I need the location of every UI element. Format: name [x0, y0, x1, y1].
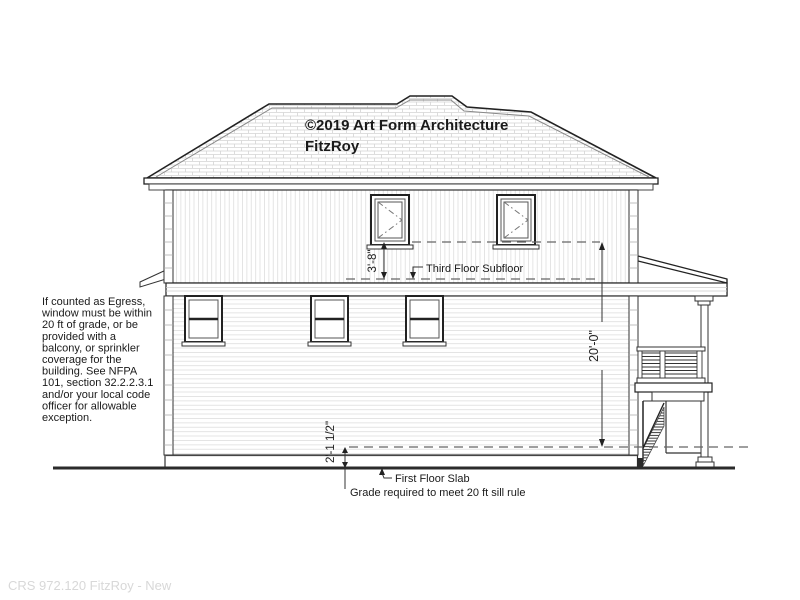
corner-board-upper-right: [629, 190, 638, 283]
egress-note-line: officer for allowable: [42, 400, 137, 412]
balcony-floor: [635, 383, 712, 401]
eave-fascia: [144, 178, 658, 190]
dim-text-sill-to-subfloor: 3'-8": [367, 250, 379, 273]
stair-rail-slats: [643, 407, 664, 466]
balcony-railing: [637, 347, 705, 383]
egress-note-line: window must be within: [41, 308, 152, 320]
window-sill: [367, 245, 413, 249]
third-floor-subfloor-text: Third Floor Subfloor: [426, 263, 524, 275]
elevation-drawing-sheet: 3'-8" 20'-0" 2'-1 1/2" Third Floor Subfl…: [0, 0, 800, 600]
second-floor-window-2: [308, 296, 351, 346]
dim-text-sill-to-grade: 20'-0": [587, 330, 601, 362]
egress-note-line: exception.: [42, 412, 92, 424]
grade-note-text: Grade required to meet 20 ft sill rule: [350, 487, 525, 499]
porch-stairs: [637, 401, 701, 468]
label-grade-note: Grade required to meet 20 ft sill rule: [350, 487, 525, 499]
left-band-return-roof: [140, 270, 166, 287]
foundation: [165, 455, 638, 468]
corner-board-upper-left: [164, 190, 173, 283]
second-floor-window-3: [403, 296, 446, 346]
dim-text-grade-to-slab: 2'-1 1/2": [325, 421, 337, 463]
first-floor-slab-text: First Floor Slab: [395, 473, 470, 485]
egress-note-line: coverage for the: [42, 354, 122, 366]
egress-note-line: balcony, or sprinkler: [42, 342, 140, 354]
copyright-title: ©2019 Art Form Architecture: [305, 117, 508, 134]
egress-note-line: 101, section 32.2.2.3.1: [42, 377, 153, 389]
egress-note-line: If counted as Egress,: [42, 296, 145, 308]
corner-board-lower-right: [629, 296, 638, 455]
model-title: FitzRoy: [305, 138, 360, 155]
upper-window-left: [367, 195, 413, 249]
floor-band: [166, 283, 727, 296]
label-first-floor-slab: First Floor Slab: [379, 468, 470, 485]
window-sill: [493, 245, 539, 249]
window-sill: [182, 342, 225, 346]
footer-drawing-id: CRS 972.120 FitzRoy - New: [8, 578, 172, 593]
window-sill: [308, 342, 351, 346]
egress-note-line: 20 ft of grade, or be: [42, 319, 138, 331]
egress-note-line: provided with a: [42, 331, 117, 343]
porch: [635, 296, 714, 468]
egress-note-line: building. See NFPA: [42, 366, 138, 378]
second-floor-window-1: [182, 296, 225, 346]
hip-roof: [147, 96, 656, 178]
corner-board-lower-left: [164, 296, 173, 455]
egress-note: If counted as Egress, window must be wit…: [41, 296, 153, 424]
side-elevation-drawing: 3'-8" 20'-0" 2'-1 1/2" Third Floor Subfl…: [0, 0, 800, 600]
window-sill: [403, 342, 446, 346]
upper-window-right: [493, 195, 539, 249]
lower-wall: [164, 296, 638, 455]
egress-note-line: and/or your local code: [42, 389, 150, 401]
